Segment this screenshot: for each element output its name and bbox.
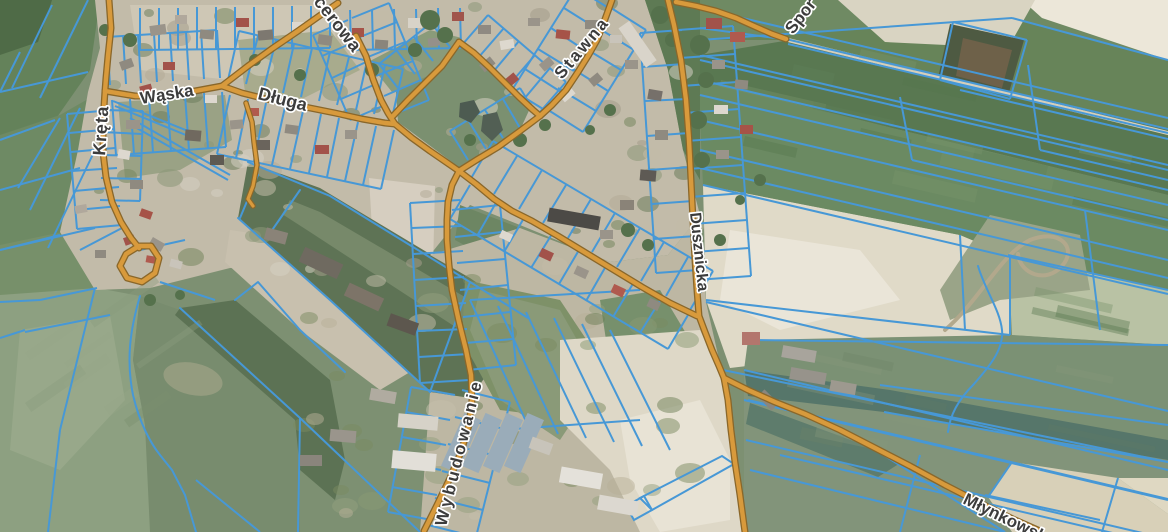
svg-text:Kręta: Kręta	[89, 105, 112, 156]
